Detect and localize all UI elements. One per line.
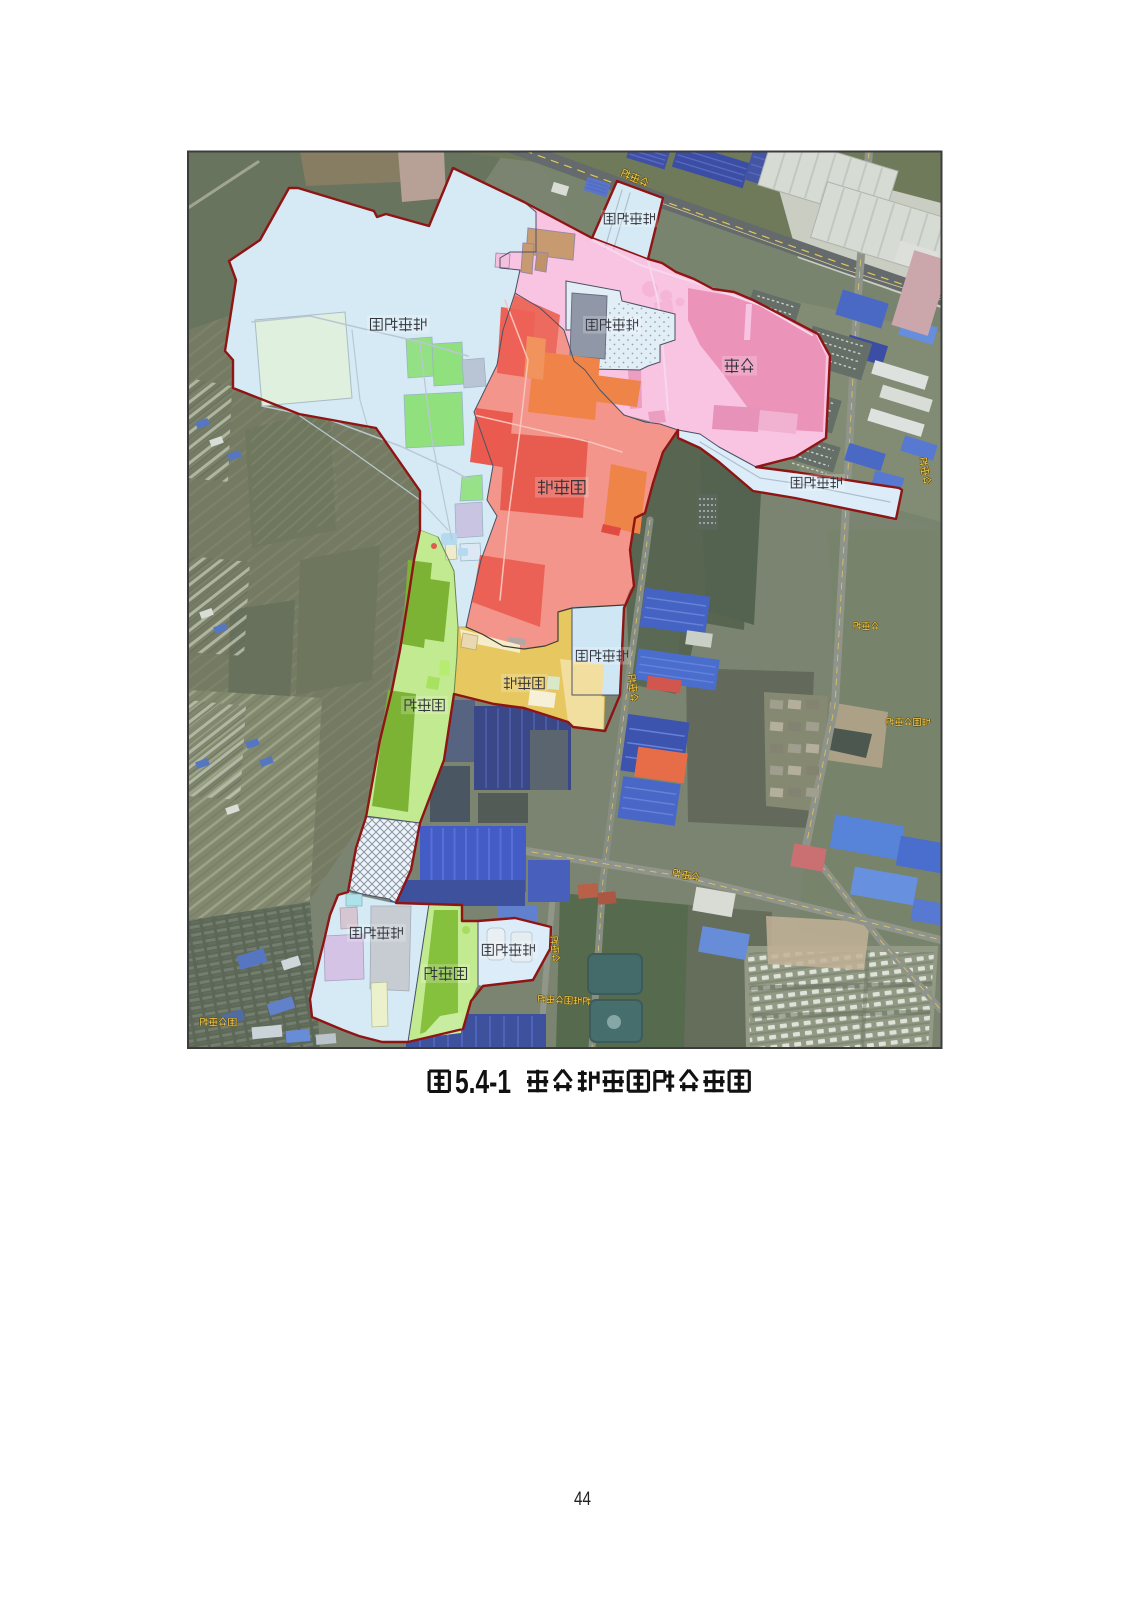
svg-text:5.4-1: 5.4-1 xyxy=(455,1063,511,1100)
svg-text:44: 44 xyxy=(574,1489,591,1510)
